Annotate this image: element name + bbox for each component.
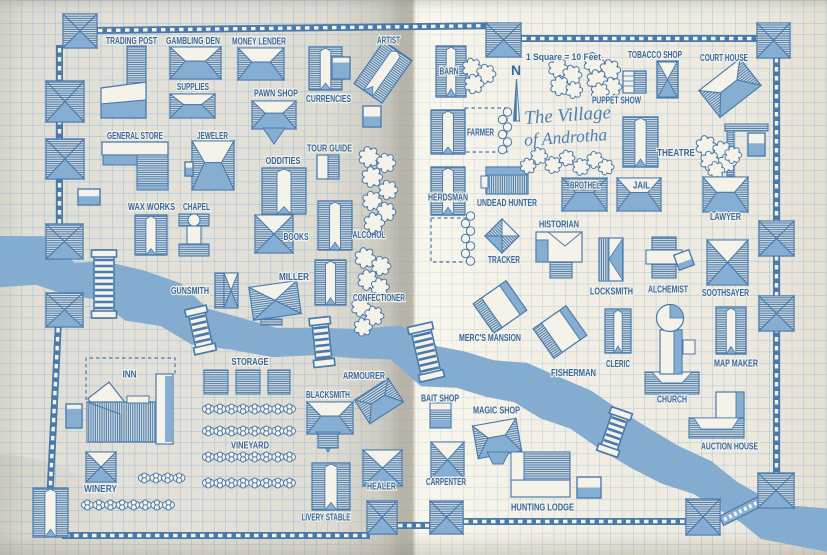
svg-text:CHURCH: CHURCH	[657, 394, 687, 406]
svg-text:JEWELER: JEWELER	[197, 130, 228, 142]
svg-text:CURRENCIES: CURRENCIES	[306, 93, 351, 105]
svg-text:MAGIC SHOP: MAGIC SHOP	[473, 405, 520, 417]
svg-text:HERDSMAN: HERDSMAN	[428, 192, 468, 204]
svg-text:MONEY LENDER: MONEY LENDER	[232, 36, 286, 48]
svg-text:ARMOURER: ARMOURER	[343, 370, 385, 382]
svg-text:COURT HOUSE: COURT HOUSE	[700, 52, 748, 64]
svg-text:GENERAL STORE: GENERAL STORE	[107, 130, 163, 142]
svg-text:CARPENTER: CARPENTER	[426, 476, 466, 488]
svg-text:LAWYER: LAWYER	[710, 211, 741, 223]
svg-text:AUCTION HOUSE: AUCTION HOUSE	[701, 441, 758, 453]
svg-text:FISHERMAN: FISHERMAN	[551, 367, 596, 379]
svg-text:TOBACCO SHOP: TOBACCO SHOP	[628, 49, 682, 61]
svg-text:LOCKSMITH: LOCKSMITH	[590, 286, 633, 298]
svg-text:HEALER: HEALER	[367, 481, 396, 493]
svg-text:JAIL: JAIL	[633, 180, 650, 192]
svg-text:SOOTHSAYER: SOOTHSAYER	[702, 287, 749, 299]
svg-text:BAIT SHOP: BAIT SHOP	[421, 393, 459, 405]
svg-text:CLERIC: CLERIC	[606, 358, 630, 370]
svg-text:CONFECTIONER: CONFECTIONER	[353, 292, 405, 304]
svg-text:TOUR GUIDE: TOUR GUIDE	[307, 143, 352, 155]
svg-text:BOOKS: BOOKS	[284, 231, 309, 243]
svg-text:STORAGE: STORAGE	[232, 356, 269, 368]
svg-text:FARMER: FARMER	[467, 127, 494, 139]
svg-text:TRADING POST: TRADING POST	[106, 35, 157, 47]
svg-text:MAP MAKER: MAP MAKER	[714, 358, 758, 370]
svg-text:THEATRE: THEATRE	[657, 147, 695, 159]
svg-text:ARTIST: ARTIST	[377, 35, 400, 47]
svg-text:1 Square = 10 Feet: 1 Square = 10 Feet	[526, 52, 602, 63]
svg-text:VINEYARD: VINEYARD	[231, 440, 269, 452]
svg-text:HUNTING LODGE: HUNTING LODGE	[511, 502, 574, 514]
svg-text:WAX WORKS: WAX WORKS	[128, 201, 175, 213]
svg-text:LIVERY STABLE: LIVERY STABLE	[302, 512, 351, 524]
svg-text:MERC'S MANSION: MERC'S MANSION	[459, 332, 521, 344]
svg-text:PUPPET SHOW: PUPPET SHOW	[592, 95, 641, 107]
svg-text:INN: INN	[123, 369, 137, 381]
svg-text:MILLER: MILLER	[279, 271, 309, 283]
svg-text:BARN: BARN	[440, 66, 459, 78]
svg-text:ALCHEMIST: ALCHEMIST	[648, 284, 688, 296]
svg-text:PAWN SHOP: PAWN SHOP	[254, 88, 298, 100]
svg-text:WINERY: WINERY	[84, 483, 117, 495]
svg-text:GUNSMITH: GUNSMITH	[171, 285, 209, 297]
svg-text:BLACKSMITH: BLACKSMITH	[306, 389, 350, 401]
svg-text:TRACKER: TRACKER	[488, 254, 520, 266]
svg-text:CHAPEL: CHAPEL	[183, 201, 210, 213]
svg-text:SUPPLIES: SUPPLIES	[177, 81, 209, 93]
svg-text:BROTHEL: BROTHEL	[570, 180, 600, 192]
svg-text:ODDITIES: ODDITIES	[266, 155, 301, 167]
svg-text:HISTORIAN: HISTORIAN	[539, 219, 579, 231]
svg-text:UNDEAD HUNTER: UNDEAD HUNTER	[477, 197, 537, 209]
svg-text:N: N	[511, 62, 521, 78]
svg-text:GAMBLING DEN: GAMBLING DEN	[166, 35, 220, 47]
